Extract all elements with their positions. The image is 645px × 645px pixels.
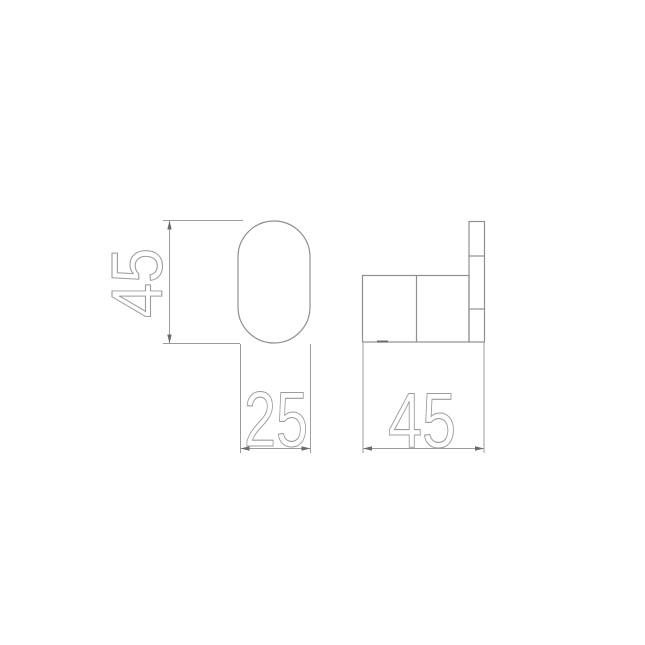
front-view-outline [238,221,310,343]
depth-dim-arrow-right [475,446,484,450]
side-view: 45 [363,222,485,465]
technical-drawing: 45 25 45 [0,0,645,645]
width-dimension-label: 25 [244,375,308,463]
depth-dim-arrow-left [363,446,372,450]
front-view: 45 25 [98,221,311,464]
height-dimension-label: 45 [98,248,178,318]
height-dim-arrow-bottom [167,335,171,344]
drawing-canvas: 45 25 45 [0,0,645,645]
side-view-body [363,276,470,343]
side-view-wall-plate [469,222,485,343]
height-dim-arrow-top [167,221,171,230]
depth-dimension-label: 45 [388,376,456,464]
